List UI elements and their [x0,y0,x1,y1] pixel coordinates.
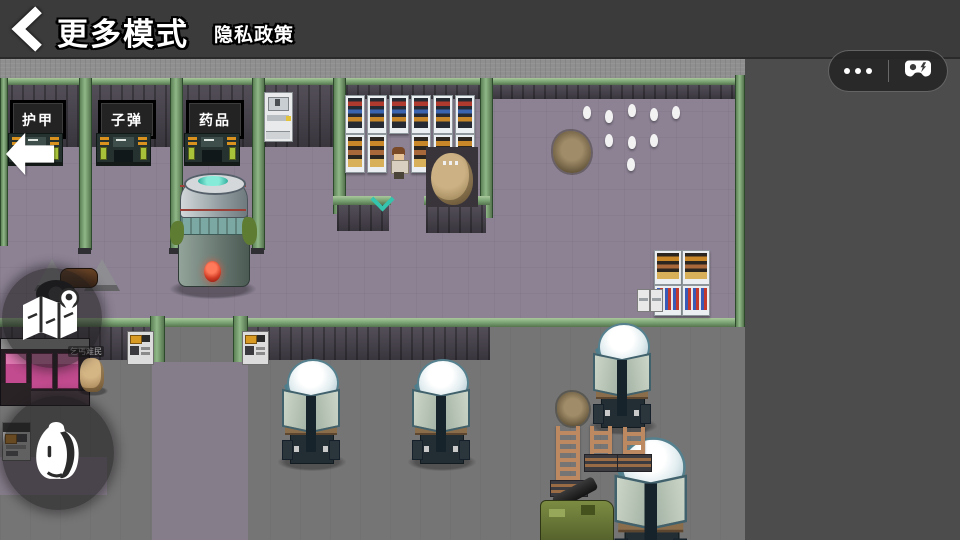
back-button[interactable] [8,6,48,57]
page-title: 更多模式 [57,9,189,54]
shop-sign-armor-label: 护甲 [22,110,54,130]
privacy-policy-button[interactable]: 隐私政策 [214,20,294,47]
wall-top-trim [0,78,743,85]
shop-sign-medicine-label: 药品 [199,110,231,130]
shop-sign-ammo-label: 子弹 [111,110,143,130]
gate-control-box [242,331,269,365]
moss [242,217,257,245]
small-machine [650,289,663,312]
npc-beggar[interactable] [80,358,104,392]
game-center-button[interactable] [889,51,948,91]
gamepad-icon [904,58,932,84]
shelf [367,134,387,173]
shelf [654,250,682,285]
dirt-crater [553,131,591,173]
dome-tank [410,358,472,470]
vending-machine [389,95,409,134]
more-options-dots-icon [844,68,872,74]
backpack-button[interactable] [2,396,114,510]
bottle-shelf [682,285,710,316]
more-options-button[interactable] [829,51,888,91]
bird [627,158,635,171]
top-bar: 更多模式 隐私政策 [0,0,960,59]
vending-machine [455,95,475,134]
pillar [79,78,92,250]
bird [672,106,680,119]
atm-machine [264,92,293,142]
dome-tank [591,322,653,434]
concrete-band [0,57,745,80]
game-screen: 护甲 子弹 药品 [0,0,960,540]
shelf [682,250,710,285]
player-character [390,147,408,179]
room-wall-bottom-b-face [426,205,486,233]
pillar-cap [78,248,91,254]
wall-bottom-face-b [246,327,490,360]
turret-body [540,500,614,540]
bird [605,110,613,123]
bird [650,108,658,121]
ladder [556,426,580,484]
dirt-crater [557,392,589,426]
dropped-items [443,161,459,165]
vending-machine [411,95,431,134]
pallet [584,454,619,472]
shelf [345,134,365,173]
shop-counter-medicine[interactable] [184,133,240,166]
road-vertical [152,362,248,540]
bird [628,104,636,117]
vending-machine [345,95,365,134]
backpack-icon [27,418,89,489]
vending-machine [367,95,387,134]
vending-machine [433,95,453,134]
map-button[interactable] [2,268,102,368]
bird [583,106,591,119]
small-machine [637,289,650,312]
dome-tank [280,358,342,470]
capsule-menu [828,50,948,92]
map-with-pin-icon [19,287,85,350]
shop-counter-ammo[interactable] [96,133,151,166]
wall-right [735,75,745,327]
storage-tank [168,173,258,298]
gate-control-box [127,331,154,365]
bird [605,134,613,147]
exit-arrow-icon [4,130,56,183]
pallet [617,454,652,472]
moss [170,221,184,245]
bird [650,134,658,147]
bird [628,136,636,149]
